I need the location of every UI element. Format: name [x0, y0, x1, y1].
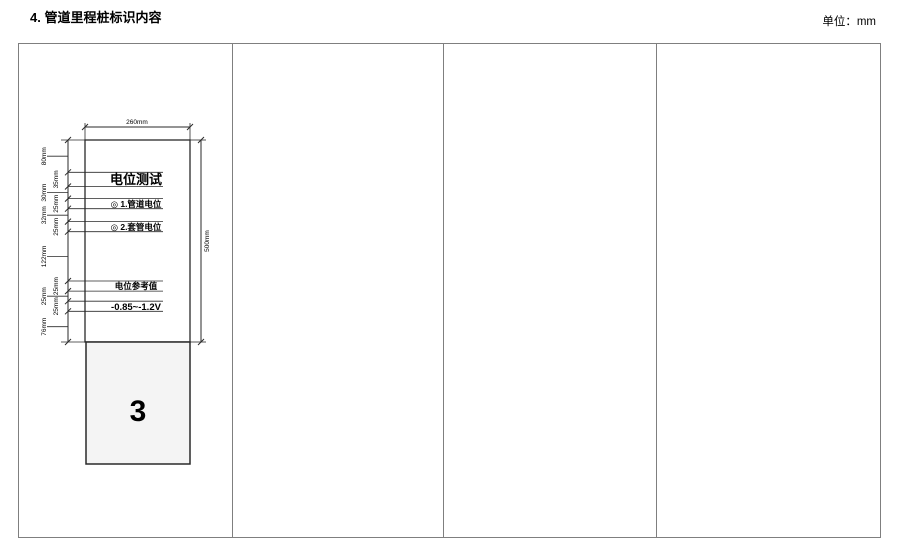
dim-segment-label: 122mm	[41, 246, 48, 268]
sign-reference-value: -0.85~-1.2V	[111, 302, 162, 313]
dim-segment-label: 25mm	[53, 297, 60, 315]
sign-diagram: 3 260mm 500mm	[19, 44, 232, 537]
dim-segment-label: 25mm	[53, 218, 60, 236]
page: 4. 管道里程桩标识内容 单位：mm 3 260mm	[0, 0, 903, 552]
dim-segment-label: 32mm	[41, 206, 48, 224]
dim-segment-label: 25mm	[53, 277, 60, 295]
sign-item-casing-potential: ◎ 2.套管电位	[111, 222, 162, 232]
table-cell-1: 3 260mm 500mm	[19, 44, 233, 537]
content-table: 3 260mm 500mm	[18, 43, 881, 538]
table-cell-3	[444, 44, 657, 537]
page-title: 4. 管道里程桩标识内容	[30, 7, 161, 26]
table-cell-4	[657, 44, 880, 537]
unit-label: 单位：mm	[822, 13, 876, 29]
table-cell-2	[233, 44, 444, 537]
dim-segment-label: 35mm	[53, 170, 60, 188]
dim-segment-label: 76mm	[41, 318, 48, 336]
dim-segment-label: 25mm	[41, 287, 48, 305]
width-dimension-label: 260mm	[126, 119, 148, 126]
dim-segment-label: 80mm	[41, 147, 48, 165]
base-number-label: 3	[130, 395, 147, 428]
sign-reference-label: 电位参考值	[115, 281, 158, 291]
height-dimension-label: 500mm	[204, 230, 211, 252]
dim-segment-label: 25mm	[53, 195, 60, 213]
sign-item-pipe-potential: ◎ 1.管道电位	[111, 199, 162, 209]
dim-segment-label: 30mm	[41, 184, 48, 202]
sign-title: 电位测试	[110, 172, 162, 187]
